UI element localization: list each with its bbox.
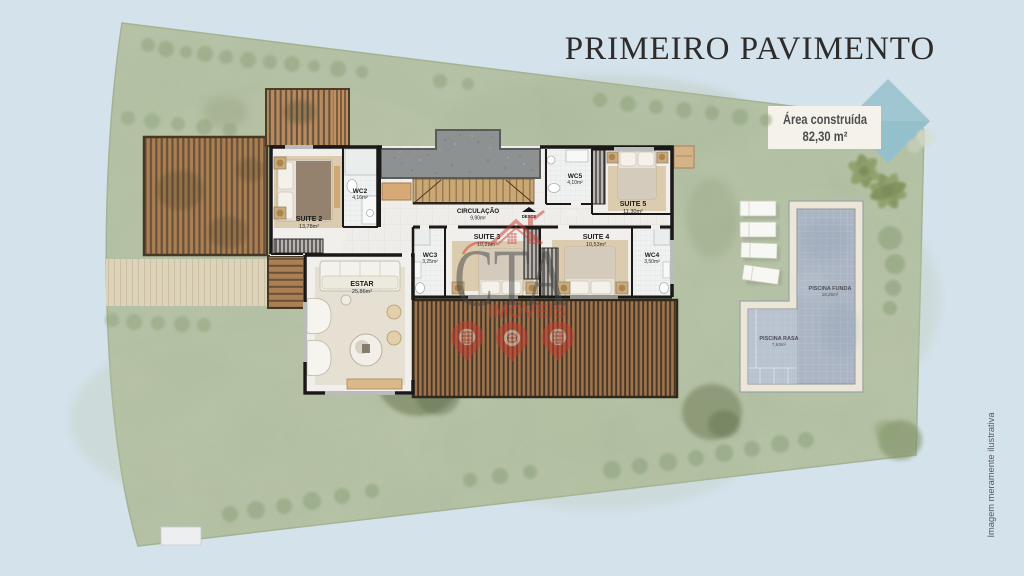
svg-text:7,63m²: 7,63m² — [772, 342, 787, 347]
svg-text:13,78m²: 13,78m² — [299, 224, 319, 230]
svg-text:WC3: WC3 — [423, 252, 438, 259]
svg-text:IMÓVEIS: IMÓVEIS — [488, 301, 567, 322]
svg-text:82,30 m²: 82,30 m² — [803, 129, 848, 144]
svg-text:WC5: WC5 — [568, 173, 583, 180]
svg-text:SUITE 4: SUITE 4 — [583, 234, 610, 241]
svg-text:18,25m²: 18,25m² — [822, 292, 839, 297]
svg-text:Área construída: Área construída — [783, 111, 867, 127]
svg-text:3,25m²: 3,25m² — [422, 259, 438, 265]
svg-text:CIRCULAÇÃO: CIRCULAÇÃO — [457, 206, 499, 215]
svg-text:SUITE 2: SUITE 2 — [296, 216, 323, 223]
svg-text:Imagem meramente ilustrativa: Imagem meramente ilustrativa — [986, 412, 996, 538]
svg-text:4,10m²: 4,10m² — [567, 180, 583, 186]
svg-text:4,16m²: 4,16m² — [352, 195, 368, 201]
svg-text:PRIMEIRO PAVIMENTO: PRIMEIRO PAVIMENTO — [565, 31, 935, 67]
svg-text:ESTAR: ESTAR — [350, 281, 373, 288]
svg-text:SUITE 5: SUITE 5 — [620, 201, 647, 208]
svg-text:WC4: WC4 — [645, 252, 660, 259]
svg-text:WC2: WC2 — [353, 188, 368, 195]
svg-text:3,50m²: 3,50m² — [644, 259, 660, 265]
svg-text:10,53m²: 10,53m² — [586, 242, 606, 248]
svg-text:9,90m²: 9,90m² — [470, 216, 486, 222]
svg-text:25,86m²: 25,86m² — [352, 289, 372, 295]
